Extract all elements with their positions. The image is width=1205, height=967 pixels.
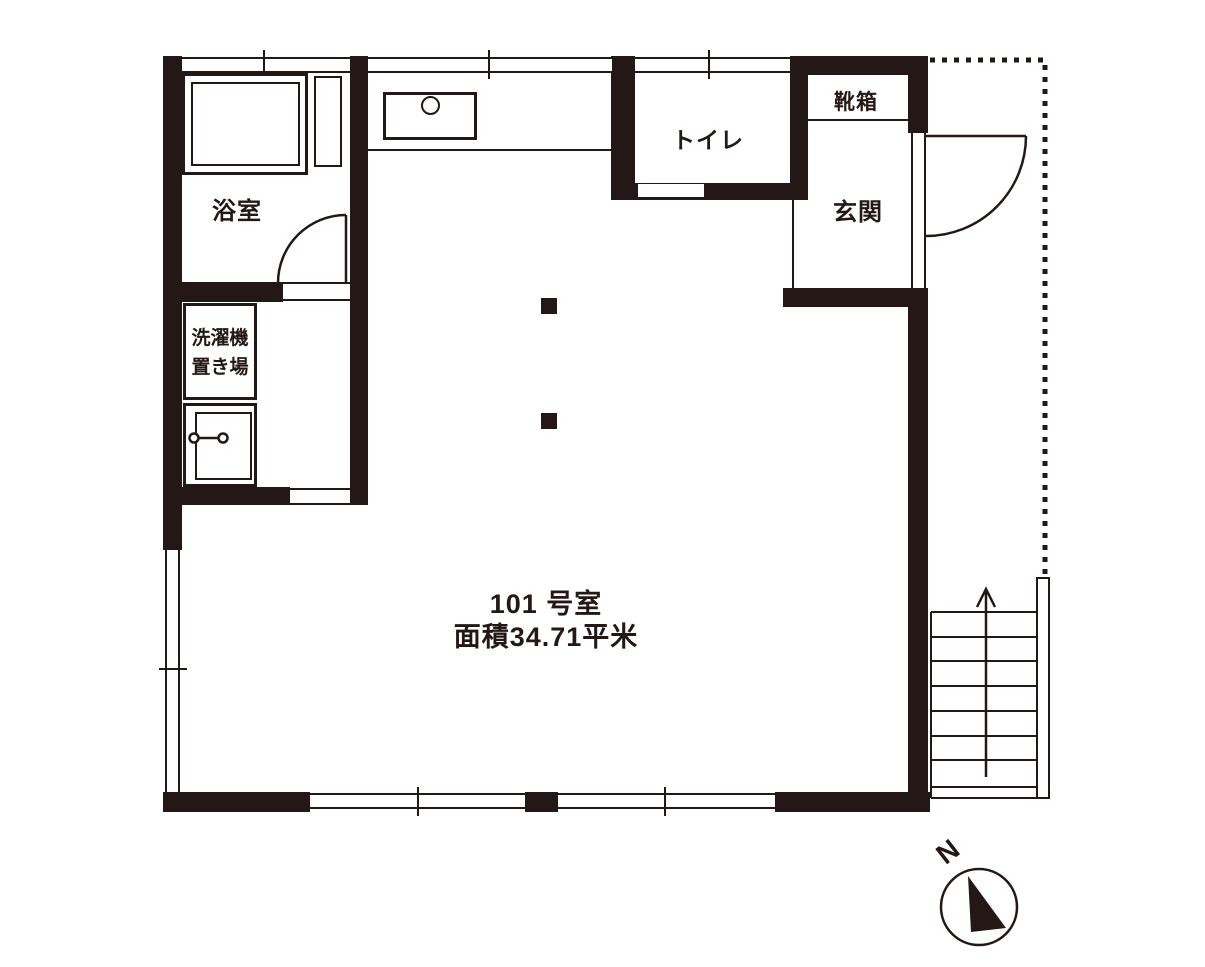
entrance-partition-line [792,200,794,290]
staircase [931,578,1049,798]
bathroom-door-swing [278,215,346,283]
entrance-label: 玄関 [808,192,908,227]
room-caption: 101 号室 面積34.71平米 [396,588,696,654]
wall-toilet-left [611,56,635,200]
pillar-top [541,298,557,314]
window-bottom-2 [558,793,775,809]
bathroom-label: 浴室 [187,191,287,226]
laundry-doorway-line [290,488,350,490]
wall-right-bottom [908,288,928,812]
room-area: 面積34.71平米 [396,621,696,654]
window-tick [664,787,666,816]
toilet-label: トイレ [648,121,768,155]
entrance-door-swing [926,136,1026,236]
wall-bathroom-bottom [163,282,283,302]
washing-machine-space-label-line2: 置き場 [183,353,257,382]
bath-doorway-line [283,299,350,301]
wall-laundry-bottom [163,487,290,505]
shoe-cabinet-label: 靴箱 [806,86,906,116]
wall-bottom-3 [775,792,930,812]
north-label: N [930,833,966,871]
stair-up-arrow-icon [977,589,995,777]
bathtub-inner [191,82,300,166]
window-tick [159,668,187,670]
washing-machine-space-label-line1: 洗濯機 [183,324,257,353]
bath-counter [314,76,342,167]
pillar-bottom [541,413,557,429]
window-left [165,550,180,792]
floor-plan: 浴室 洗濯機 置き場 トイレ 靴箱 玄関 101 号室 面積34.71平米 N [0,0,1205,967]
entrance-door-frame [911,133,926,288]
wall-interior-bath [350,56,368,505]
wall-left [163,56,182,550]
wall-toilet-right [790,56,808,200]
window-top-3 [635,57,790,73]
window-top-2 [368,57,612,73]
room-number: 101 号室 [396,588,696,621]
bath-doorway-line [283,282,350,284]
shoe-cabinet-divider-line [808,119,908,121]
compass-icon [941,869,1017,945]
wall-bottom-2 [525,792,558,812]
wall-bottom-1 [163,792,310,812]
stair-stringer [1037,578,1049,798]
wall-entrance-bottom [783,288,928,307]
window-tick [488,50,490,79]
kitchen-counter-edge [368,149,612,151]
toilet-door [637,183,705,198]
window-tick [708,50,710,79]
window-tick [417,787,419,816]
utility-sink-basin [195,412,252,480]
washing-machine-space-label: 洗濯機 置き場 [183,324,257,382]
laundry-doorway-line [290,503,350,505]
wall-right-top [908,56,928,133]
window-top-1 [182,57,350,73]
kitchen-sink-drain [421,96,440,115]
dotted-boundary-line [930,60,1045,576]
